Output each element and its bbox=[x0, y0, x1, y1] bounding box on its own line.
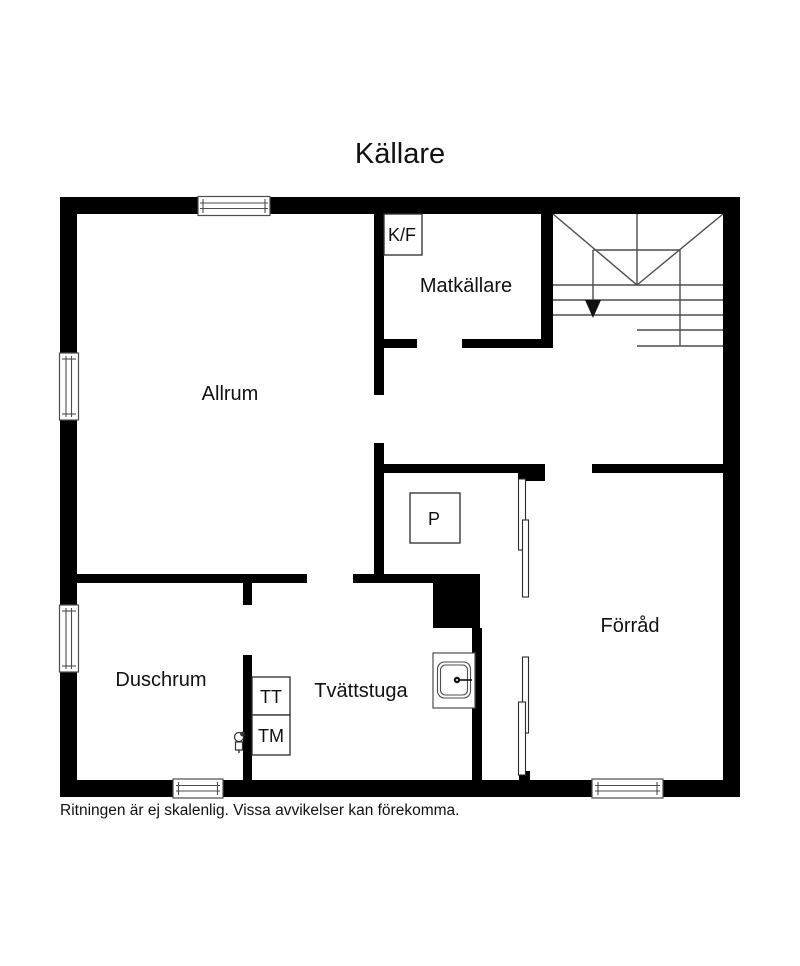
room-label-duschrum: Duschrum bbox=[115, 669, 206, 691]
fixture-label-tm: TM bbox=[258, 726, 284, 746]
wall-duschrum-divider-lower bbox=[243, 655, 252, 780]
room-label-matkallare: Matkällare bbox=[420, 275, 512, 297]
wall-forrad-top bbox=[592, 464, 723, 473]
wall-allrum-right-lower bbox=[374, 443, 384, 583]
window-left-upper bbox=[60, 353, 79, 420]
sliding-door-lower bbox=[519, 657, 529, 775]
wall-matkallare-bottom-left bbox=[384, 339, 417, 348]
wall-allrum-right-upper bbox=[374, 214, 384, 395]
wall-top-main-segment bbox=[270, 197, 740, 214]
wall-bottom-right-segment bbox=[663, 780, 740, 797]
floor-plan-drawing: Allrum Matkällare Duschrum Tvättstuga Fö… bbox=[0, 0, 800, 966]
wall-stairwell-left bbox=[541, 214, 553, 347]
wall-allrum-bottom-right bbox=[353, 574, 433, 583]
fixture-label-tt: TT bbox=[260, 687, 282, 707]
wall-duschrum-divider-stub bbox=[243, 583, 252, 605]
chimney-block bbox=[433, 574, 480, 628]
wall-bottom-left-segment bbox=[60, 780, 173, 797]
staircase bbox=[553, 214, 723, 346]
fixture-label-kf: K/F bbox=[388, 225, 416, 245]
outer-walls bbox=[60, 197, 740, 797]
wall-left-middle bbox=[60, 420, 77, 605]
room-label-forrad: Förråd bbox=[601, 615, 660, 637]
wall-corridor-top bbox=[384, 464, 545, 473]
window-top bbox=[198, 197, 270, 216]
fixture-label-p: P bbox=[428, 509, 440, 529]
sliding-door-upper bbox=[519, 479, 529, 597]
wall-bottom-main-segment bbox=[223, 780, 592, 797]
wall-right bbox=[723, 197, 740, 797]
window-bottom-left bbox=[173, 779, 223, 798]
disclaimer-text: Ritningen är ej skalenlig. Vissa avvikel… bbox=[60, 802, 459, 820]
wall-matkallare-bottom-right bbox=[462, 339, 553, 348]
window-left-lower bbox=[60, 605, 79, 672]
laundry-sink bbox=[433, 653, 475, 708]
wall-left-lower bbox=[60, 672, 77, 797]
room-label-tvattstuga: Tvättstuga bbox=[314, 680, 408, 702]
wall-top-left-segment bbox=[60, 197, 198, 214]
floor-plan-page: Källare bbox=[0, 0, 800, 966]
wall-left-upper bbox=[60, 197, 77, 353]
window-bottom-right bbox=[592, 779, 663, 798]
room-label-allrum: Allrum bbox=[202, 383, 259, 405]
wall-allrum-bottom-left bbox=[77, 574, 307, 583]
